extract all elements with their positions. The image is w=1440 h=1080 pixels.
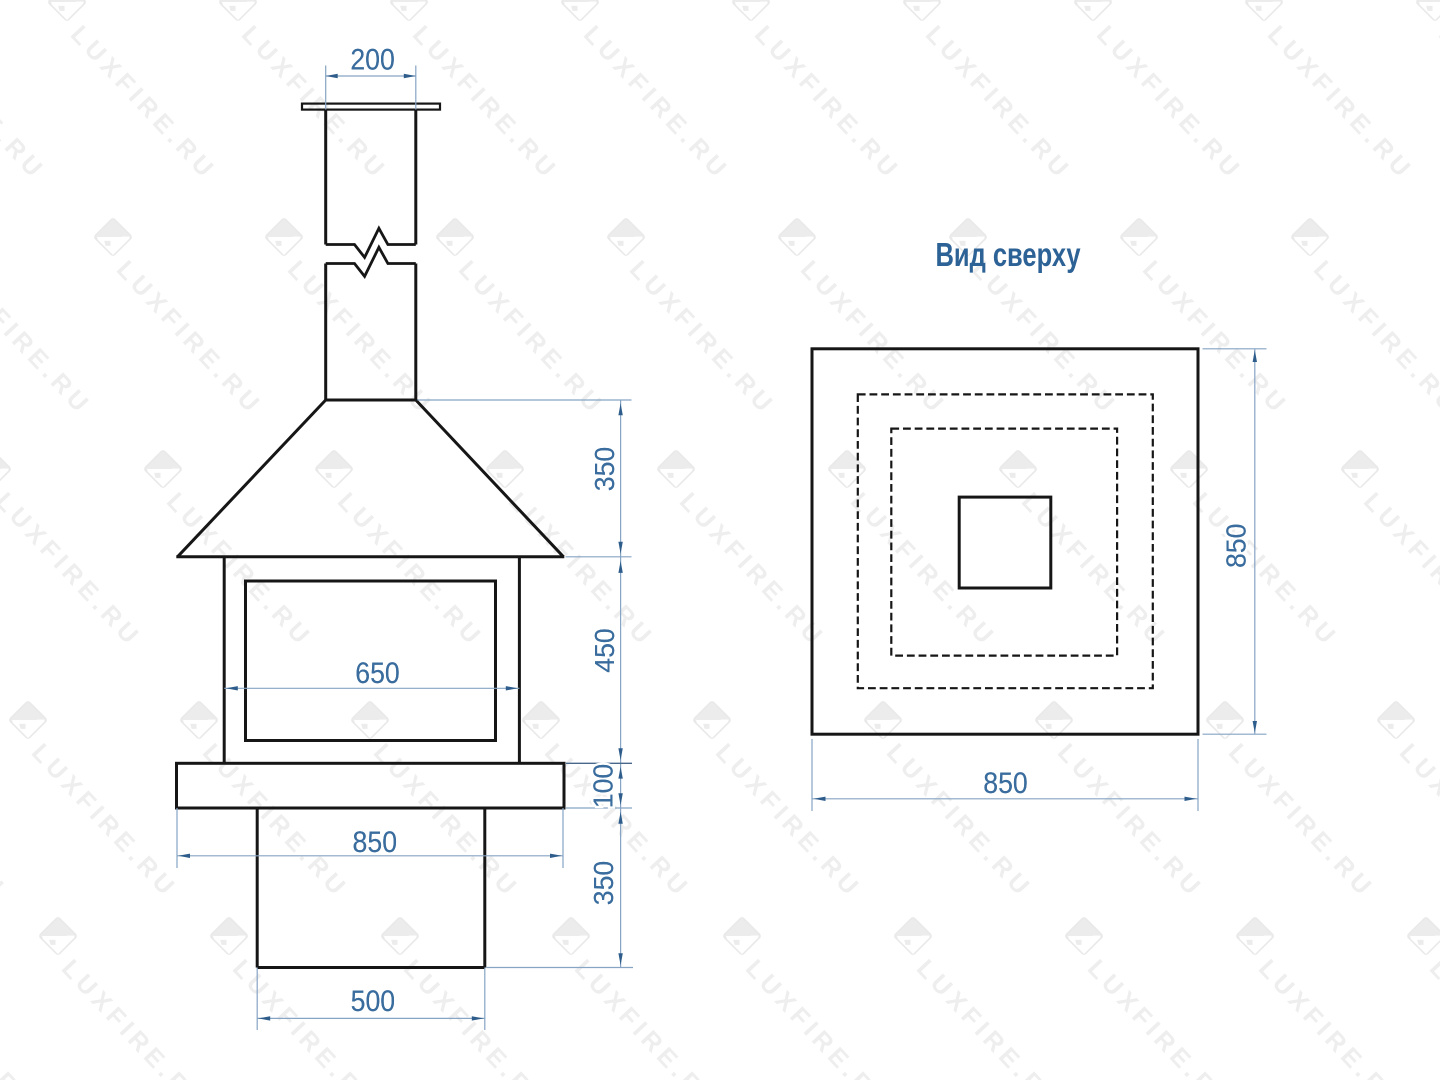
svg-text:Вид сверху: Вид сверху bbox=[936, 236, 1081, 273]
svg-text:850: 850 bbox=[353, 826, 398, 859]
svg-text:350: 350 bbox=[588, 861, 619, 906]
svg-text:450: 450 bbox=[589, 628, 620, 673]
svg-text:850: 850 bbox=[1221, 524, 1252, 569]
svg-text:350: 350 bbox=[589, 447, 620, 492]
svg-text:100: 100 bbox=[588, 764, 619, 809]
svg-text:200: 200 bbox=[350, 44, 395, 77]
svg-text:850: 850 bbox=[983, 767, 1028, 800]
svg-text:500: 500 bbox=[351, 985, 396, 1018]
svg-text:650: 650 bbox=[355, 657, 400, 690]
